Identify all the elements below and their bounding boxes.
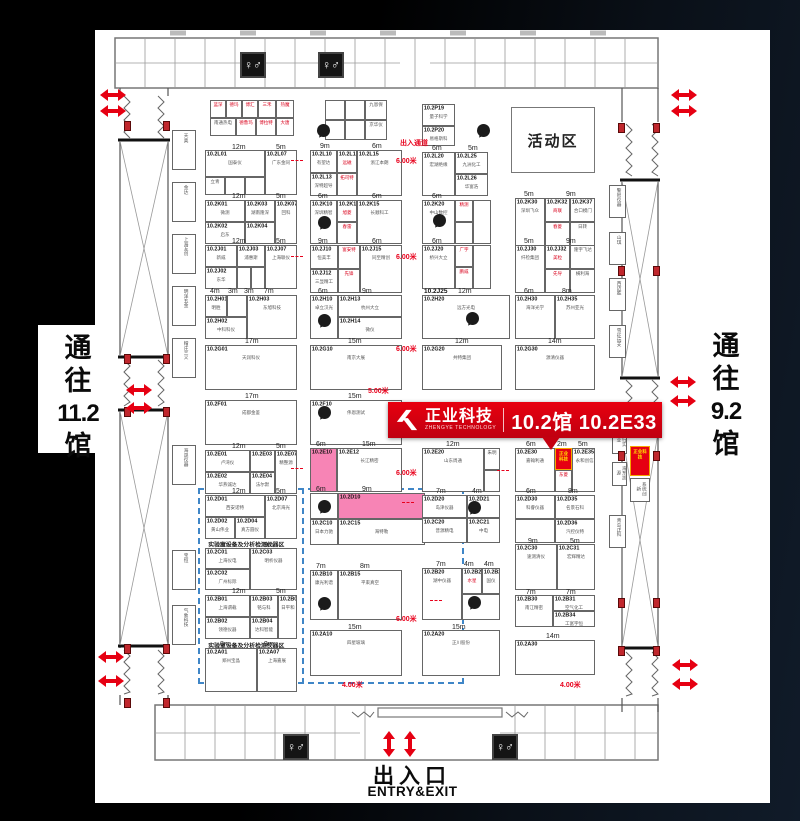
banner-booth-location: 10.2馆 10.2E33 (511, 406, 657, 435)
booth-10.2J15: 10.2J15同至精创 (360, 245, 402, 293)
booth (227, 295, 247, 317)
dimension-label: 9m (264, 542, 274, 549)
dimension-label: 7m (566, 589, 576, 596)
dimension-label: 9m (320, 143, 330, 150)
booth-10.2C21: 10.2C21中电 (467, 518, 500, 543)
dimension-label: 9m (528, 538, 538, 545)
dimension-label: 15m (348, 338, 362, 345)
dimension-label: 5m (276, 443, 286, 450)
aisle-width-label: 6.00米 (396, 470, 417, 477)
gate-bracket (653, 598, 660, 608)
dimension-label: 5m (276, 193, 286, 200)
gate-bracket (124, 698, 131, 708)
dimension-label: 5m (276, 144, 286, 151)
direction-arrow-icon (672, 677, 698, 695)
gate-bracket (618, 451, 625, 461)
booth-10.2G01: 10.2G01天润科仪 (205, 345, 297, 390)
booth-10.2L01: 10.2L01国泰仪 (205, 150, 265, 177)
booth-10.2C01: 10.2C01上海仪电 (205, 548, 250, 569)
direction-arrow-icon (126, 401, 152, 419)
aisle-width-label: 6.00米 (396, 616, 417, 623)
entry-exit-label-en: ENTRY&EXIT (340, 784, 485, 799)
booth: 青岛正科 (609, 515, 626, 548)
booth-10.2C03: 10.2C03明析仪器 (250, 548, 297, 590)
aisle-width-label: 5.00米 (368, 388, 389, 395)
booth-10.2C10: 10.2C10日本力驰 (310, 519, 338, 545)
dimension-label: 12m (455, 338, 469, 345)
booth-10.2B21: 10.2B21国仪 (482, 568, 500, 594)
dimension-label: 12m (232, 488, 246, 495)
booth: 立青 (205, 177, 225, 195)
dimension-label: 5m (524, 238, 534, 245)
booth: 隆宇飞达 (570, 245, 595, 269)
gate-bracket (163, 644, 170, 654)
booth-10.2P19: 10.2P19量子科学 (422, 104, 455, 126)
booth: 正业科技 (630, 446, 650, 476)
booth (345, 120, 365, 140)
booth-10.2J07: 10.2J07上海联仪 (265, 245, 297, 289)
booth-10.2J30: 10.2J30纤检集团 (515, 245, 545, 293)
booth (473, 245, 491, 289)
dimension-label: 8m (562, 288, 572, 295)
booth: 天奥 (172, 130, 196, 170)
gate-left-char2: 往 (52, 365, 104, 398)
dimension-label: 5m (578, 441, 588, 448)
restroom-icon: ♀♂ (240, 52, 266, 78)
booth-10.2B01: 10.2B01上海谓载 (205, 595, 250, 617)
pillar-icon (317, 124, 330, 137)
gate-left-char3: 馆 (52, 430, 104, 463)
booth: 博拉特 (256, 118, 276, 136)
entry-arrow-icon (399, 731, 417, 757)
gate-bracket (653, 451, 660, 461)
booth-10.2K03: 10.2K03湖南隆深 (245, 200, 275, 222)
dimension-label: 8m (360, 563, 370, 570)
gate-left-char1: 通 (52, 332, 104, 365)
booth (473, 200, 491, 244)
dimension-label: 6m (372, 143, 382, 150)
gate-label-right: 通 往 9.2 馆 (700, 330, 752, 461)
booth: 朱明 (484, 448, 500, 470)
dimension-label: 14m (548, 338, 562, 345)
dimension-label: 4m (484, 561, 494, 568)
booth-10.2F01: 10.2F01成都金鉴 (205, 400, 297, 445)
booth-10.2J10: 10.2J10恒美丰 (310, 245, 338, 269)
booth-10.2C20: 10.2C20普源精电 (422, 518, 467, 543)
dimension-label: 9m (318, 238, 328, 245)
dimension-label: 6m (432, 193, 442, 200)
gate-bracket (618, 646, 625, 656)
booth (251, 267, 265, 289)
booth-10.2G30: 10.2G30源清仪器 (515, 345, 595, 390)
dimension-label: 15m (348, 393, 362, 400)
dimension-label: 6m (316, 441, 326, 448)
pillar-icon (433, 214, 446, 227)
booth-10.2B10: 10.2B10康光利谱 (310, 570, 338, 620)
dimension-label: 12m (458, 288, 472, 295)
highlight-banner: 正业科技 ZHENGYE TECHNOLOGY 10.2馆 10.2E33 (388, 402, 662, 438)
aisle-dash (291, 468, 303, 469)
dimension-label: 5m (524, 191, 534, 198)
dimension-label: 15m (348, 624, 362, 631)
restroom-icon: ♀♂ (492, 734, 518, 760)
booth (345, 100, 365, 120)
booth-10.2C31: 10.2C31宏辉精达 (557, 544, 595, 590)
booth-10.2K04: 10.2K04 (245, 222, 275, 244)
booth: 富安特 (338, 245, 360, 269)
dimension-label: 9m (264, 641, 274, 648)
booth-10.2L20: 10.2L20宏湖绝缘 (422, 152, 455, 196)
pillar-icon (466, 312, 479, 325)
booth-10.2K01: 10.2K01微测 (205, 200, 245, 222)
dimension-label: 6m (524, 288, 534, 295)
booth-10.2A07: 10.2A07上海嘉展 (257, 648, 297, 692)
booth-10.2H02: 10.2H02中科科仪 (205, 317, 247, 339)
booth: 先锋 (338, 269, 360, 293)
gate-right-char3: 馆 (700, 428, 752, 461)
booth (325, 100, 345, 120)
booth: 金达 (172, 182, 196, 222)
direction-arrow-icon (670, 375, 696, 393)
booth-10.2E35: 10.2E35永和创信 (572, 448, 595, 492)
dimension-label: 12m (232, 588, 246, 595)
dimension-label: 8m (220, 641, 230, 648)
booth-10.2C02: 10.2C02广州标际 (205, 569, 250, 590)
booth-10.2A10: 10.2A10四星玻璃 (310, 630, 402, 676)
booth-10.2L26: 10.2L26华富浩 (455, 174, 488, 196)
direction-arrow-icon (672, 658, 698, 676)
booth: 博汇 (242, 100, 258, 118)
booth-10.2L12: 10.2L12远磁 (337, 150, 357, 173)
booth: 精测 (455, 200, 473, 222)
pillar-icon (318, 216, 331, 229)
dimension-label: 4m (210, 288, 220, 295)
booth: 九恩保 (365, 100, 387, 120)
dimension-label: 8m (568, 488, 578, 495)
booth-10.2D01: 10.2D01西安诺特 (205, 495, 265, 517)
booth-10.2L25: 10.2L25九洲化工 (455, 152, 488, 174)
booth-10.2B15: 10.2B15平束真空 (338, 570, 402, 620)
gate-bracket (653, 123, 660, 133)
aisle-dash (430, 600, 442, 601)
booth: 西迈胜 (609, 278, 626, 311)
booth: 德玛 (226, 100, 242, 118)
dimension-label: 17m (245, 393, 259, 400)
restroom-icon: ♀♂ (318, 52, 344, 78)
dimension-label: 9m (362, 288, 372, 295)
booth: 海东凯源 (612, 462, 627, 486)
zhengye-logo-icon (394, 408, 420, 432)
booth-10.2D07: 10.2D07北京海光 (265, 495, 297, 539)
booth-10.2E03: 10.2E03 (250, 450, 275, 472)
gate-bracket (618, 266, 625, 276)
dimension-label: 14m (546, 633, 560, 640)
dimension-label: 7m (526, 589, 536, 596)
direction-arrow-icon (126, 383, 152, 401)
booth-10.2E20: 10.2E20山东周通 (422, 448, 484, 492)
dimension-label: 7m (436, 488, 446, 495)
aisle-width-label: 4.00米 (342, 682, 363, 689)
booth-10.2B04: 10.2B04达科智能 (250, 617, 278, 639)
dimension-label: 12m (232, 443, 246, 450)
dimension-label: 6m (526, 441, 536, 448)
booth: 德鲁玛 (236, 118, 256, 136)
gate-right-char2: 往 (700, 363, 752, 396)
booth-10.2K12: 10.2K12旭菱 (337, 200, 357, 222)
dimension-label: 17m (245, 338, 259, 345)
gate-label-left: 通 往 11.2 馆 (52, 332, 104, 463)
booth-10.2B34: 10.2B34工富宇恒 (553, 611, 595, 627)
dimension-label: 5m (570, 538, 580, 545)
direction-arrow-icon (100, 104, 126, 122)
booth: 南通热电 (210, 118, 236, 136)
dimension-label: 4m (472, 488, 482, 495)
booth-id-label: 10.2J25 (424, 288, 448, 295)
gate-bracket (124, 644, 131, 654)
gate-bracket (618, 598, 625, 608)
direction-arrow-icon (98, 674, 124, 692)
booth (237, 267, 251, 289)
gate-bracket (163, 354, 170, 364)
aisle-width-label: 6.00米 (396, 158, 417, 165)
dimension-label: 3m (244, 288, 254, 295)
booth-10.2L07: 10.2L07广东金同 (265, 150, 297, 195)
booth: 山琪 (609, 232, 626, 265)
gate-right-number: 9.2 (700, 396, 752, 428)
dimension-label: 3m (228, 288, 238, 295)
dimension-label: 12m (232, 193, 246, 200)
booth-10.2H35: 10.2H35苏州亚光 (555, 295, 595, 339)
booth: 雪征远支 (609, 325, 626, 358)
dimension-label: 5m (276, 488, 286, 495)
dimension-label: 8m (220, 542, 230, 549)
gate-bracket (163, 407, 170, 417)
booth-10.2E04: 10.2E04法尔默 (250, 472, 275, 494)
booth-10.2B02: 10.2B02领德仪器 (205, 617, 250, 639)
direction-arrow-icon (98, 650, 124, 668)
booth-10.2H30: 10.2H30海洋光学 (515, 295, 555, 339)
booth: 帽庄三义 (172, 338, 196, 378)
dimension-label: 5m (468, 145, 478, 152)
booth-10.2K37: 10.2K37合口模门 (570, 198, 595, 222)
entry-arrow-icon (378, 731, 396, 757)
booth-10.2D02: 10.2D02黄山伟业 (205, 517, 235, 539)
pillar-icon (318, 314, 331, 327)
booth: 蓝深 (210, 100, 226, 118)
dimension-label: 15m (452, 624, 466, 631)
booth-10.2E01: 10.2E01卢湾仪 (205, 450, 250, 472)
booth-10.2D20: 10.2D20岛津仪器 (422, 495, 467, 518)
gate-bracket (124, 354, 131, 364)
gate-bracket (163, 121, 170, 131)
gate-bracket (618, 123, 625, 133)
booth-10.2J32: 10.2J32美粒 (545, 245, 570, 269)
booth-10.2J03: 10.2J03浦惠斯 (237, 245, 265, 267)
booth: 大唐 (276, 118, 294, 136)
booth: 上海互创 (172, 234, 196, 274)
pillar-icon (318, 500, 331, 513)
restroom-icon: ♀♂ (283, 734, 309, 760)
gate-bracket (653, 646, 660, 656)
banner-divider (503, 408, 504, 432)
dimension-label: 7m (436, 561, 446, 568)
booth-10.2K32: 10.2K32商联 (545, 198, 570, 222)
aisle-dash (291, 256, 303, 257)
banner-pointer-icon (542, 437, 560, 459)
dimension-label: 7m (264, 288, 274, 295)
booth-10.2C30: 10.2C30速测清仪 (515, 544, 557, 590)
dimension-label: 6m (318, 288, 328, 295)
dimension-label: 9m (566, 238, 576, 245)
aisle-width-label: 6.00米 (396, 346, 417, 353)
booth: 横利海 (570, 269, 595, 293)
booth-10.2C15: 10.2C15海特勒 (338, 519, 425, 545)
booth: 明泽五金 (172, 286, 196, 326)
booth (484, 470, 500, 492)
dimension-label: 6m (526, 488, 536, 495)
booth-10.2B03: 10.2B03铭与科 (250, 595, 278, 617)
dimension-label: 7m (316, 563, 326, 570)
booth-10.2A30: 10.2A30 (515, 640, 595, 675)
gate-right-char1: 通 (700, 330, 752, 363)
booth: 气象科技 (172, 605, 196, 645)
booth: 海晟仪器 (172, 445, 196, 485)
booth-10.2H14: 10.2H14微仪 (338, 317, 402, 339)
booth: 春雷 (337, 222, 357, 244)
aisle-dash (291, 160, 303, 161)
gate-bracket (163, 698, 170, 708)
booth-10.2B30: 10.2B30南江精密 (515, 595, 553, 627)
booth-10.2H13: 10.2H13杭州大立 (338, 295, 402, 317)
pillar-icon (318, 597, 331, 610)
dimension-label: 6m (316, 486, 326, 493)
pillar-icon (318, 406, 331, 419)
direction-arrow-icon (670, 394, 696, 412)
dimension-label: 12m (232, 238, 246, 245)
booth-10.2B07: 10.2B07日平和 (278, 595, 297, 639)
exhibition-floorplan: 活动区 实验室设备及分析检测仪器区 实验室设备及分析检测仪器区 蓝深德玛博汇三禾… (0, 0, 800, 821)
booth-10.2D10: 10.2D10 (338, 493, 425, 519)
booth: 宝恒 (172, 550, 196, 590)
aisle-dash (402, 502, 414, 503)
booth: 京华仪 (365, 120, 387, 140)
booth-10.2G10: 10.2G10南京大展 (310, 345, 402, 390)
banner-brand-cn: 正业科技 (425, 409, 496, 425)
dimension-label: 6m (372, 193, 382, 200)
booth-10.2H03: 10.2H03东旭科技 (247, 295, 297, 339)
booth: 拓司特 (337, 173, 357, 196)
pillar-icon (468, 501, 481, 514)
booth: 鹏威 (455, 267, 473, 289)
booth-10.2A20: 10.2A20正川股份 (422, 630, 500, 676)
dimension-label: 6m (432, 145, 442, 152)
booth: 系统创新 (630, 478, 650, 502)
aisle-width-label: 4.00米 (560, 682, 581, 689)
dimension-label: 9m (566, 191, 576, 198)
booth-10.2L10: 10.2L10有望达 (310, 150, 337, 173)
booth-10.2B20: 10.2B20湖中仪器 (422, 568, 462, 620)
booth-10.2J02: 10.2J02东华 (205, 267, 237, 289)
booth-10.2J01: 10.2J01新威 (205, 245, 237, 267)
booth-10.2H01: 10.2H01明胜 (205, 295, 227, 317)
dimension-label: 5m (276, 588, 286, 595)
booth-10.2A01: 10.2A01郑州宝晶 (205, 648, 257, 692)
booth-10.2D30: 10.2D30科睿仪器 (515, 495, 555, 519)
direction-arrow-icon (671, 104, 697, 122)
banner-brand-en: ZHENGYE TECHNOLOGY (425, 426, 496, 431)
pillar-icon (468, 596, 481, 609)
gate-left-number: 11.2 (52, 398, 104, 430)
booth: 警智仪器 (609, 185, 626, 218)
aisle-dash (497, 470, 509, 471)
booth-10.2G20: 10.2G20共特集团 (422, 345, 502, 390)
booth-10.2J20: 10.2J20桥兴大立 (422, 245, 455, 289)
dimension-label: 9m (362, 486, 372, 493)
dimension-label: 12m (446, 441, 460, 448)
pillar-icon (477, 124, 490, 137)
gate-bracket (124, 121, 131, 131)
booth: 三禾 (258, 100, 276, 118)
booth-10.2L15: 10.2L15浙江本朗 (357, 150, 402, 196)
dimension-label: 6m (372, 238, 382, 245)
dimension-label: 4m (464, 561, 474, 568)
dimension-label: 6m (318, 193, 328, 200)
dimension-label: 6m (432, 238, 442, 245)
aisle-width-label: 出入通道 (400, 140, 428, 147)
booth: 热魔 (276, 100, 294, 118)
booth-10.2D04: 10.2D04真方圆仪 (235, 517, 265, 539)
booth: 广宇 (455, 245, 473, 267)
dimension-label: 5m (276, 238, 286, 245)
booth-10.2D35: 10.2D35名景石科 (555, 495, 595, 519)
booth (455, 222, 473, 244)
booth-10.2B31: 10.2B31空气化工 (553, 595, 595, 611)
dimension-label: 15m (362, 441, 376, 448)
dimension-label: 12m (232, 144, 246, 151)
booth (245, 177, 265, 195)
gate-bracket (653, 266, 660, 276)
booth-10.2B22: 10.2B22水星 (462, 568, 482, 594)
aisle-width-label: 6.00米 (396, 254, 417, 261)
